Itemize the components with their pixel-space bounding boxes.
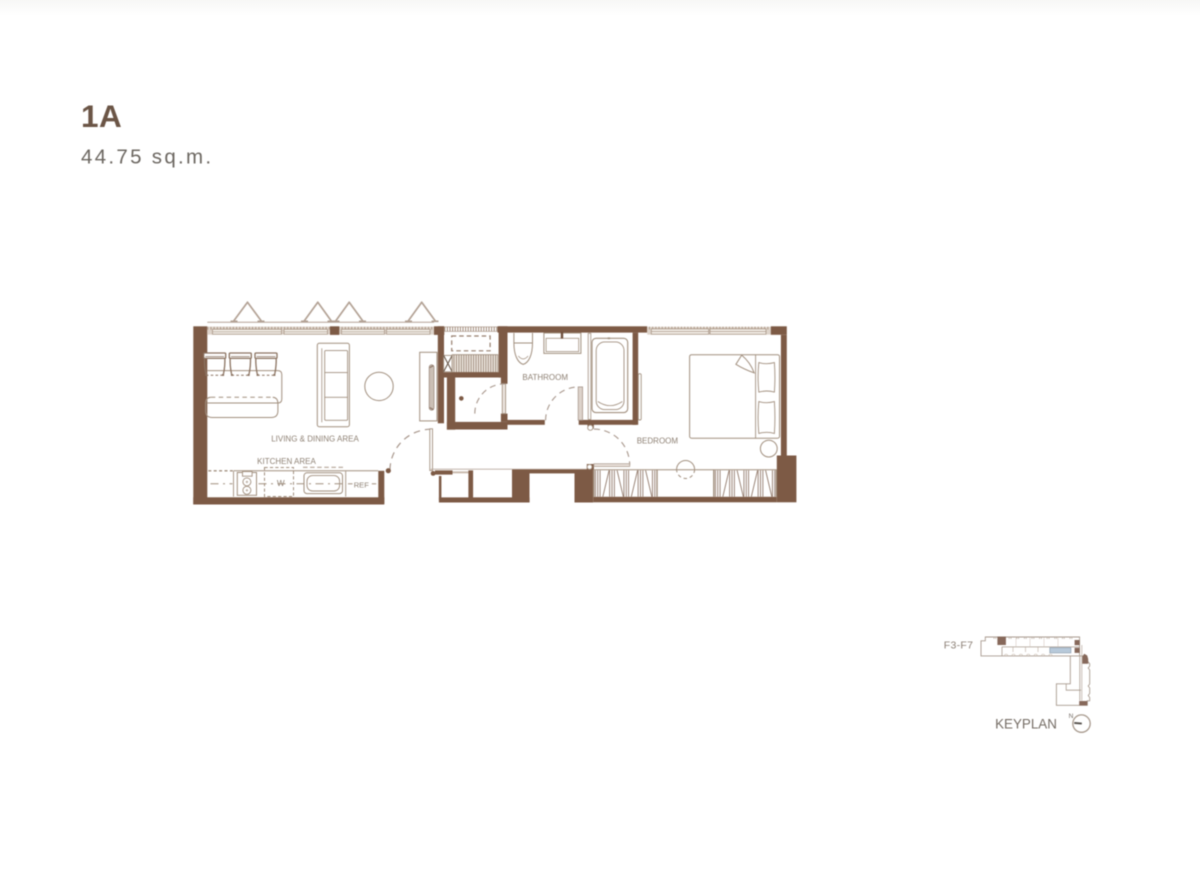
svg-text:KITCHEN AREA: KITCHEN AREA [257, 457, 316, 466]
svg-text:REF: REF [354, 481, 370, 490]
svg-text:N: N [1069, 713, 1074, 720]
svg-text:1A: 1A [81, 98, 122, 134]
svg-text:BATHROOM: BATHROOM [522, 373, 568, 382]
svg-text:BEDROOM: BEDROOM [637, 437, 679, 446]
svg-text:LIVING & DINING AREA: LIVING & DINING AREA [271, 434, 359, 443]
svg-text:44.75 sq.m.: 44.75 sq.m. [81, 146, 213, 169]
svg-text:F3-F7: F3-F7 [944, 640, 974, 652]
svg-text:KEYPLAN: KEYPLAN [995, 716, 1057, 731]
